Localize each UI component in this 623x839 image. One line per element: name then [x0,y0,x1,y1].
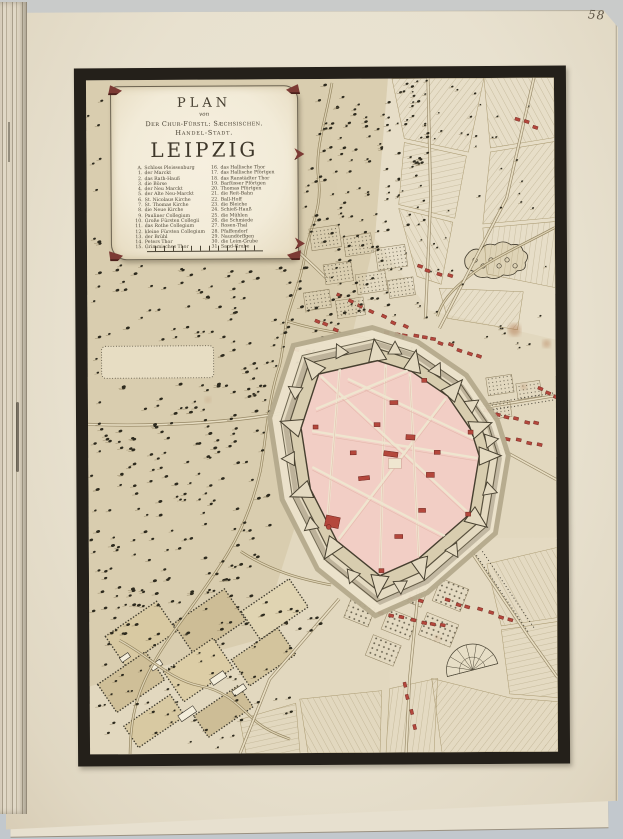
legend-column-right: 16.das Hallische Thor17.das Hallische Pf… [211,165,276,250]
page-right-edge [615,22,617,811]
cartouche-corner-curl [287,250,301,260]
scale-bar [147,245,263,252]
map-content: PLAN von Der Chur-Fürstl: Sæchsischen. H… [86,78,558,755]
map-title-line3: Der Chur-Fürstl: Sæchsischen. [111,119,297,128]
map-title-von: von [111,111,297,118]
map-legend: A.Schloss Pleissenburg1.der Marckt2.das … [111,165,298,251]
book-binding-edge [0,2,27,814]
map-title-leipzig: LEIPZIG [111,137,297,162]
folio-number: 58 [588,7,606,22]
scanned-atlas-page: 58 [0,0,623,839]
map-frame: PLAN von Der Chur-Fürstl: Sæchsischen. H… [74,66,570,767]
map-title-plan: PLAN [111,95,297,111]
legend-column-left: A.Schloss Pleissenburg1.der Marckt2.das … [134,166,205,251]
map-title-line4: Handel-Stadt. [111,128,297,137]
title-cartouche: PLAN von Der Chur-Fürstl: Sæchsischen. H… [110,85,299,260]
cartouche-corner-curl [108,85,122,95]
page-top-edge [6,9,618,12]
